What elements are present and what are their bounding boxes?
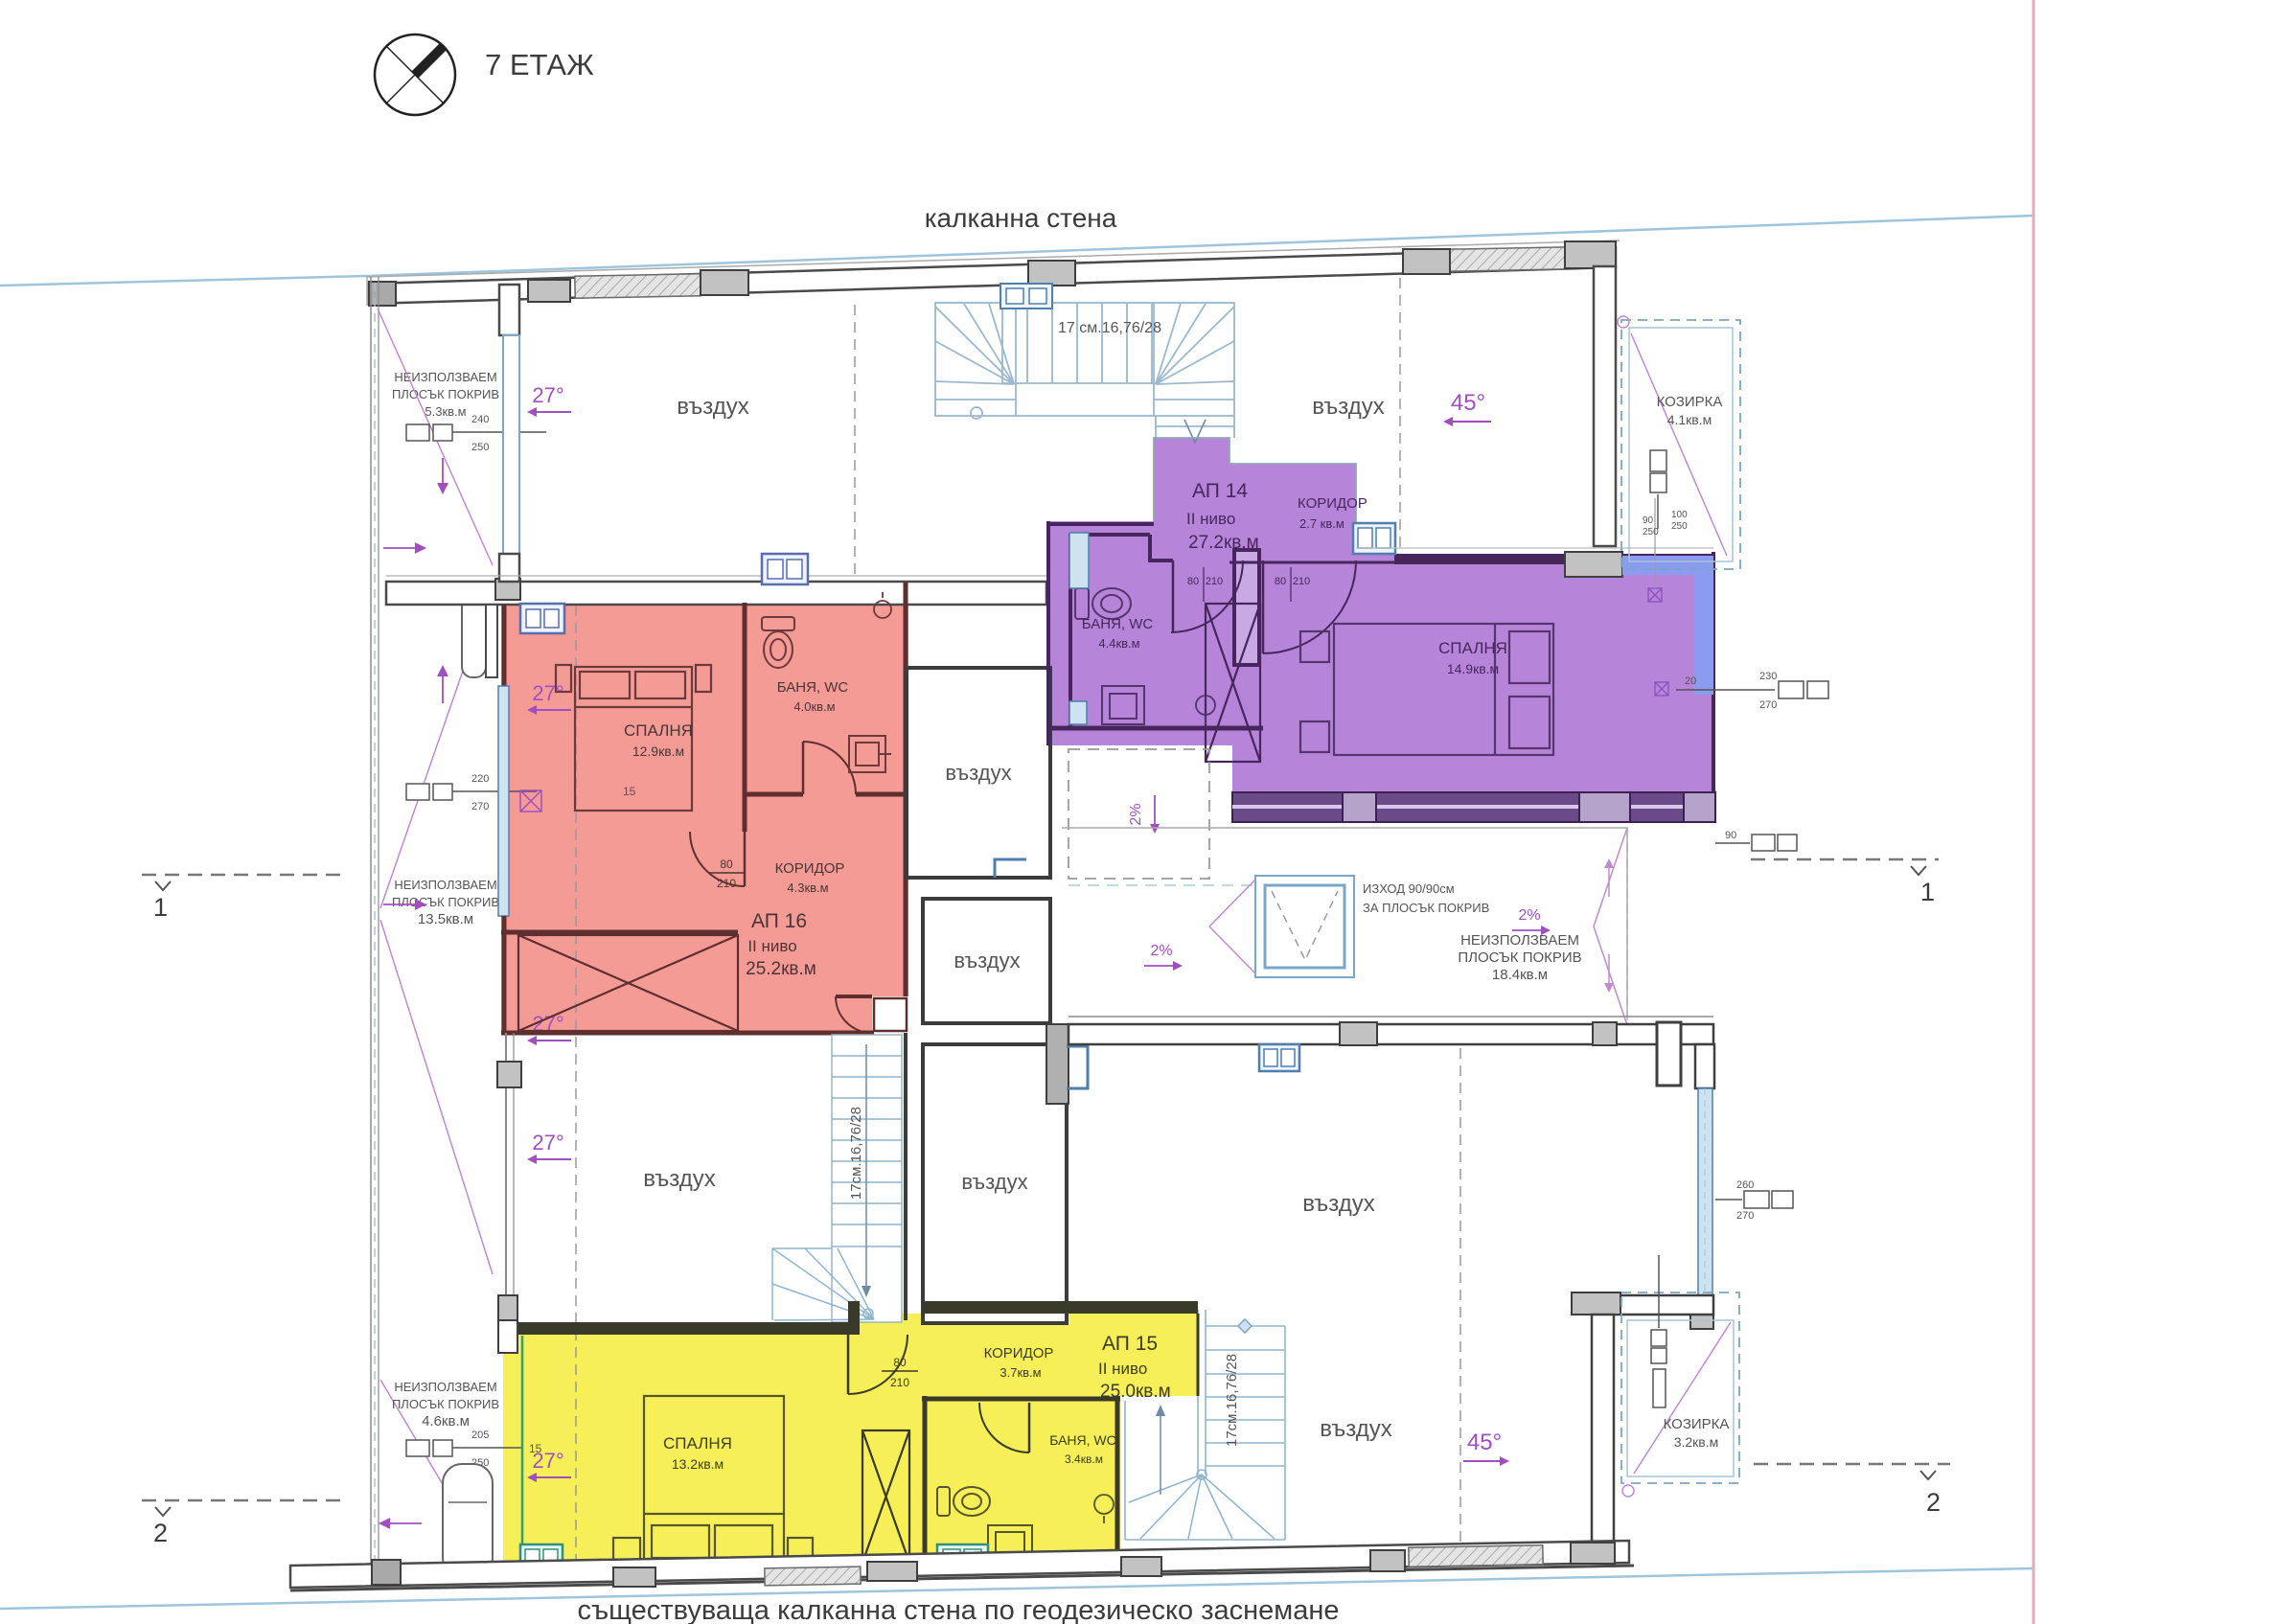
svg-text:ПЛОСЪК ПОКРИВ: ПЛОСЪК ПОКРИВ xyxy=(392,387,499,401)
svg-text:2.7 кв.м: 2.7 кв.м xyxy=(1299,516,1344,531)
svg-text:45°: 45° xyxy=(1451,390,1485,416)
svg-text:3.4кв.м: 3.4кв.м xyxy=(1065,1452,1103,1466)
svg-text:КОЗИРКА: КОЗИРКА xyxy=(1657,394,1723,410)
svg-text:210: 210 xyxy=(1206,576,1223,587)
svg-text:ИЗХОД 90/90см: ИЗХОД 90/90см xyxy=(1363,881,1455,896)
svg-text:НЕИЗПОЛЗВАЕМ: НЕИЗПОЛЗВАЕМ xyxy=(394,878,496,892)
svg-text:260: 260 xyxy=(1736,1179,1754,1191)
svg-text:СПАЛНЯ: СПАЛНЯ xyxy=(1438,639,1507,657)
svg-text:3.7кв.м: 3.7кв.м xyxy=(1000,1365,1041,1380)
svg-text:90: 90 xyxy=(1725,830,1736,841)
svg-text:въздух: въздух xyxy=(961,1170,1027,1194)
svg-text:18.4кв.м: 18.4кв.м xyxy=(1492,967,1548,983)
svg-text:2%: 2% xyxy=(1150,943,1172,959)
svg-text:12.9кв.м: 12.9кв.м xyxy=(632,743,684,759)
svg-text:калканна стена: калканна стена xyxy=(925,203,1117,233)
svg-text:14.9кв.м: 14.9кв.м xyxy=(1447,661,1499,676)
svg-text:КОРИДОР: КОРИДОР xyxy=(1298,495,1367,512)
svg-text:27°: 27° xyxy=(532,1449,563,1473)
svg-text:въздух: въздух xyxy=(945,761,1011,785)
svg-text:270: 270 xyxy=(1736,1210,1754,1222)
svg-text:80: 80 xyxy=(720,858,733,871)
svg-text:АП 15: АП 15 xyxy=(1102,1333,1158,1355)
svg-text:210: 210 xyxy=(1293,576,1310,587)
svg-text:II ниво: II ниво xyxy=(1186,510,1235,528)
svg-text:13.5кв.м: 13.5кв.м xyxy=(418,911,473,927)
svg-text:II ниво: II ниво xyxy=(1098,1360,1147,1378)
svg-text:4.3кв.м: 4.3кв.м xyxy=(787,881,828,895)
svg-text:205: 205 xyxy=(471,1430,489,1441)
svg-text:45°: 45° xyxy=(1467,1430,1502,1455)
svg-text:13.2кв.м: 13.2кв.м xyxy=(672,1456,724,1472)
svg-text:ПЛОСЪК ПОКРИВ: ПЛОСЪК ПОКРИВ xyxy=(392,895,499,909)
svg-text:въздух: въздух xyxy=(1320,1416,1391,1442)
svg-text:КОРИДОР: КОРИДОР xyxy=(984,1345,1054,1361)
svg-text:17 см.16,76/28: 17 см.16,76/28 xyxy=(1058,320,1161,336)
svg-text:27°: 27° xyxy=(532,383,563,407)
svg-text:80: 80 xyxy=(1275,576,1286,587)
svg-text:НЕИЗПОЛЗВАЕМ: НЕИЗПОЛЗВАЕМ xyxy=(1460,932,1579,949)
svg-text:съществуваща калканна стена по: съществуваща калканна стена по геодезиче… xyxy=(578,1595,1340,1624)
svg-text:210: 210 xyxy=(890,1376,909,1389)
svg-text:250: 250 xyxy=(1643,527,1659,538)
svg-text:250: 250 xyxy=(1671,521,1688,532)
svg-text:1: 1 xyxy=(153,893,168,922)
svg-text:27.2кв.м: 27.2кв.м xyxy=(1188,533,1259,553)
svg-text:2: 2 xyxy=(1926,1488,1941,1517)
svg-text:4.1кв.м: 4.1кв.м xyxy=(1667,412,1712,427)
svg-text:въздух: въздух xyxy=(677,394,748,420)
svg-text:4.0кв.м: 4.0кв.м xyxy=(793,699,835,714)
svg-text:90: 90 xyxy=(1643,515,1654,526)
svg-text:НЕИЗПОЛЗВАЕМ: НЕИЗПОЛЗВАЕМ xyxy=(394,1380,496,1394)
svg-text:2%: 2% xyxy=(1128,803,1144,825)
svg-text:4.6кв.м: 4.6кв.м xyxy=(422,1413,470,1430)
svg-text:БАНЯ, WC: БАНЯ, WC xyxy=(1082,616,1154,632)
svg-text:100: 100 xyxy=(1671,510,1688,520)
svg-text:НЕИЗПОЛЗВАЕМ: НЕИЗПОЛЗВАЕМ xyxy=(394,370,496,384)
svg-text:БАНЯ, WC: БАНЯ, WC xyxy=(777,679,849,696)
svg-text:7 ЕТАЖ: 7 ЕТАЖ xyxy=(485,48,594,81)
svg-text:5.3кв.м: 5.3кв.м xyxy=(425,404,466,419)
svg-text:ПЛОСЪК ПОКРИВ: ПЛОСЪК ПОКРИВ xyxy=(1458,949,1581,966)
svg-text:17см.16,76/28: 17см.16,76/28 xyxy=(1224,1354,1240,1447)
svg-text:220: 220 xyxy=(471,773,489,785)
svg-text:въздух: въздух xyxy=(954,949,1020,972)
svg-text:КОЗИРКА: КОЗИРКА xyxy=(1664,1416,1730,1432)
svg-text:25.0кв.м: 25.0кв.м xyxy=(1100,1382,1171,1402)
svg-text:ЗА ПЛОСЪК ПОКРИВ: ЗА ПЛОСЪК ПОКРИВ xyxy=(1363,901,1489,915)
svg-text:1: 1 xyxy=(1920,878,1935,906)
svg-text:въздух: въздух xyxy=(643,1166,715,1192)
svg-text:80: 80 xyxy=(1187,576,1199,587)
svg-text:250: 250 xyxy=(471,442,489,453)
svg-text:4.4кв.м: 4.4кв.м xyxy=(1098,636,1139,651)
svg-text:СПАЛНЯ: СПАЛНЯ xyxy=(663,1434,732,1452)
svg-text:20: 20 xyxy=(1685,675,1696,687)
svg-text:270: 270 xyxy=(471,801,489,812)
svg-text:210: 210 xyxy=(717,877,736,890)
svg-text:17см.16,76/28: 17см.16,76/28 xyxy=(848,1107,864,1200)
svg-text:27°: 27° xyxy=(532,681,563,705)
svg-text:3.2кв.м: 3.2кв.м xyxy=(1674,1434,1719,1450)
svg-text:230: 230 xyxy=(1759,671,1777,682)
svg-text:II ниво: II ниво xyxy=(747,937,796,955)
svg-text:ПЛОСЪК ПОКРИВ: ПЛОСЪК ПОКРИВ xyxy=(392,1397,499,1411)
svg-text:въздух: въздух xyxy=(1302,1191,1374,1217)
svg-text:БАНЯ, WC: БАНЯ, WC xyxy=(1049,1432,1116,1448)
svg-text:27°: 27° xyxy=(532,1131,563,1155)
svg-text:2%: 2% xyxy=(1518,907,1540,924)
svg-text:2: 2 xyxy=(153,1519,168,1547)
svg-text:въздух: въздух xyxy=(1312,394,1384,420)
svg-text:240: 240 xyxy=(471,414,489,425)
svg-text:КОРИДОР: КОРИДОР xyxy=(775,860,845,877)
svg-text:АП 16: АП 16 xyxy=(751,910,807,932)
svg-text:АП 14: АП 14 xyxy=(1192,480,1248,502)
svg-text:СПАЛНЯ: СПАЛНЯ xyxy=(624,721,693,740)
svg-text:80: 80 xyxy=(893,1356,907,1369)
svg-text:25.2кв.м: 25.2кв.м xyxy=(746,959,816,979)
svg-text:15: 15 xyxy=(623,785,636,798)
svg-text:270: 270 xyxy=(1759,699,1777,711)
